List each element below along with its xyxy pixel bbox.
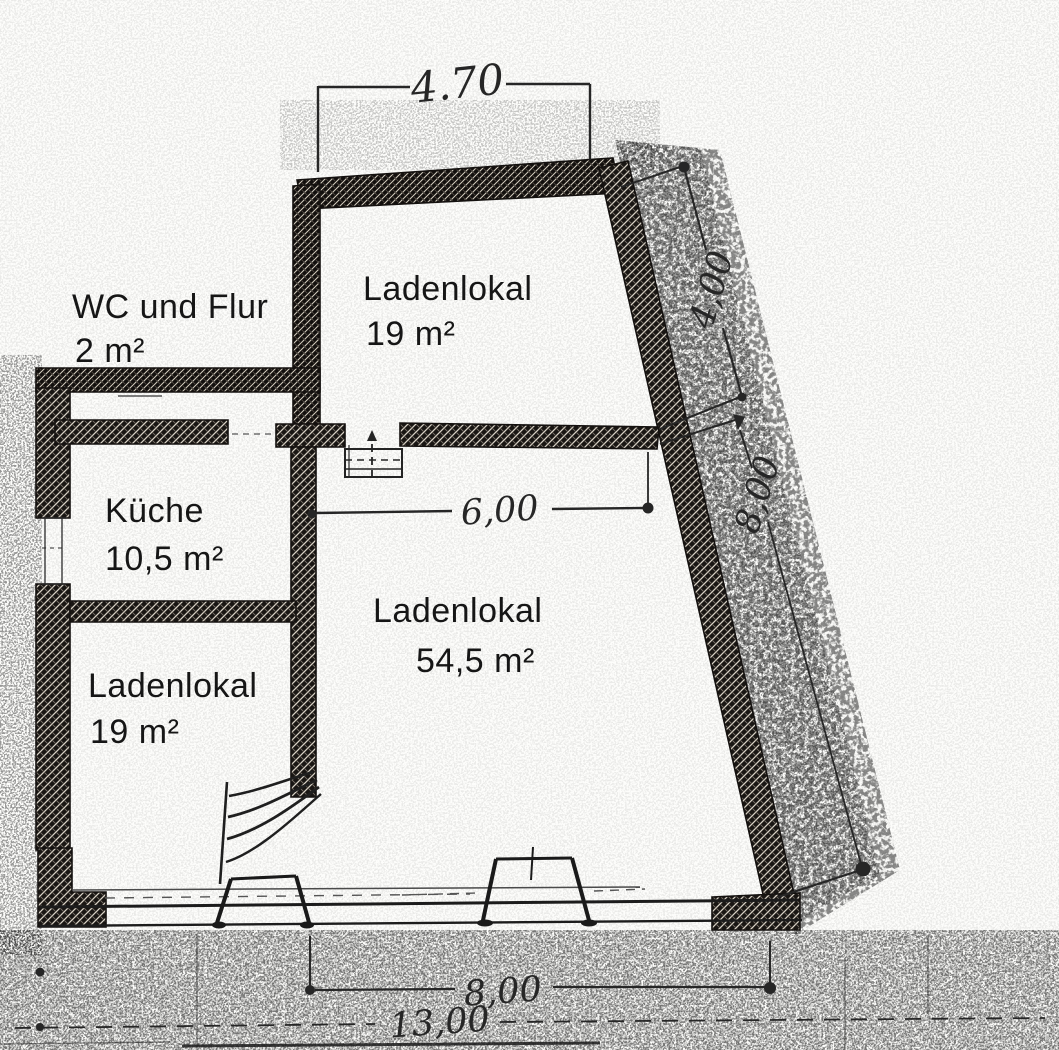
wall-left-lower — [36, 584, 70, 850]
room-area-wc-flur: 2 m² — [75, 332, 145, 370]
room-name-kueche: Küche — [105, 492, 204, 530]
wall-middle-right-seg — [400, 423, 659, 449]
floor-plan-scan: 4.70 6,00 4,00 8,00 8,00 13,00 WC und Fl… — [0, 0, 1059, 1050]
floor-plan-drawing: 4.70 6,00 4,00 8,00 8,00 13,00 WC und Fl… — [0, 0, 1059, 1050]
wall-kitchen-bottom — [70, 601, 296, 622]
wall-left-upper — [36, 388, 70, 518]
room-name-wc-flur: WC und Flur — [72, 288, 268, 326]
dim-total-width-label: 13,00 — [388, 1000, 491, 1047]
room-area-kueche: 10,5 m² — [105, 540, 224, 578]
wall-bottomright-block — [712, 893, 800, 930]
wall-wc-right — [293, 184, 320, 433]
dim-inner-width-label: 6,00 — [459, 488, 540, 533]
room-area-laden-left: 19 m² — [90, 713, 179, 751]
wall-topleft-horizontal — [36, 368, 320, 392]
room-name-laden-main: Ladenlokal — [373, 592, 542, 630]
room-name-laden-left: Ladenlokal — [88, 667, 257, 705]
dim-top-width-label: 4.70 — [407, 54, 506, 113]
wall-kitchen-top — [55, 420, 228, 444]
room-area-laden-main: 54,5 m² — [416, 642, 535, 680]
wall-middle-left-seg — [276, 424, 345, 447]
room-area-laden-top: 19 m² — [366, 315, 455, 353]
room-name-laden-top: Ladenlokal — [363, 270, 532, 308]
